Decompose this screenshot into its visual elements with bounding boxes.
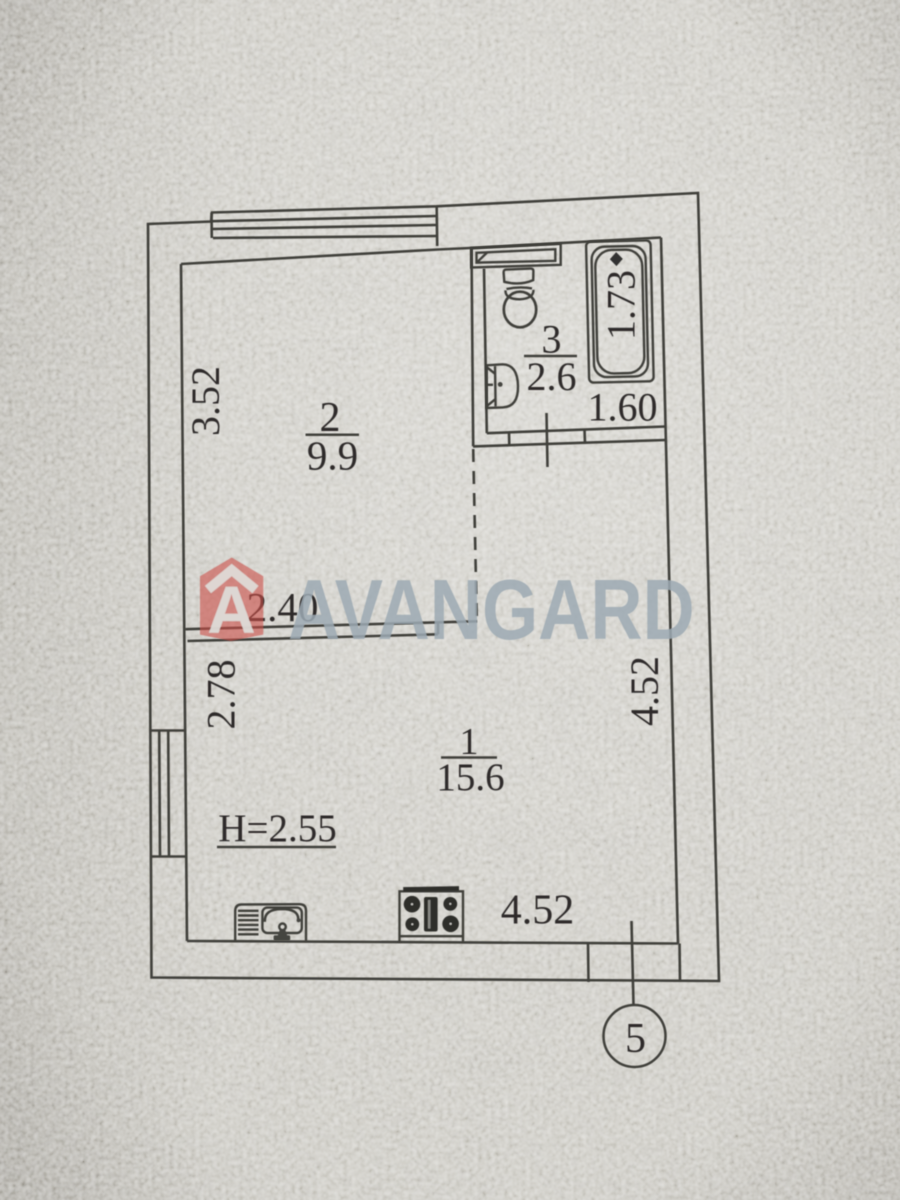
svg-text:2.78: 2.78 [199, 660, 244, 730]
svg-text:A: A [207, 573, 255, 648]
svg-text:2.6: 2.6 [527, 354, 577, 399]
svg-text:4.52: 4.52 [622, 656, 667, 726]
svg-text:15.6: 15.6 [436, 756, 504, 799]
svg-text:1.73: 1.73 [599, 270, 644, 340]
svg-text:AVANGARD: AVANGARD [288, 562, 695, 657]
svg-text:3.52: 3.52 [183, 366, 228, 436]
svg-text:1.60: 1.60 [588, 385, 658, 430]
svg-text:H=2.55: H=2.55 [218, 807, 336, 850]
svg-text:9.9: 9.9 [307, 433, 358, 479]
svg-text:5: 5 [625, 1016, 646, 1062]
svg-text:4.52: 4.52 [501, 888, 575, 934]
